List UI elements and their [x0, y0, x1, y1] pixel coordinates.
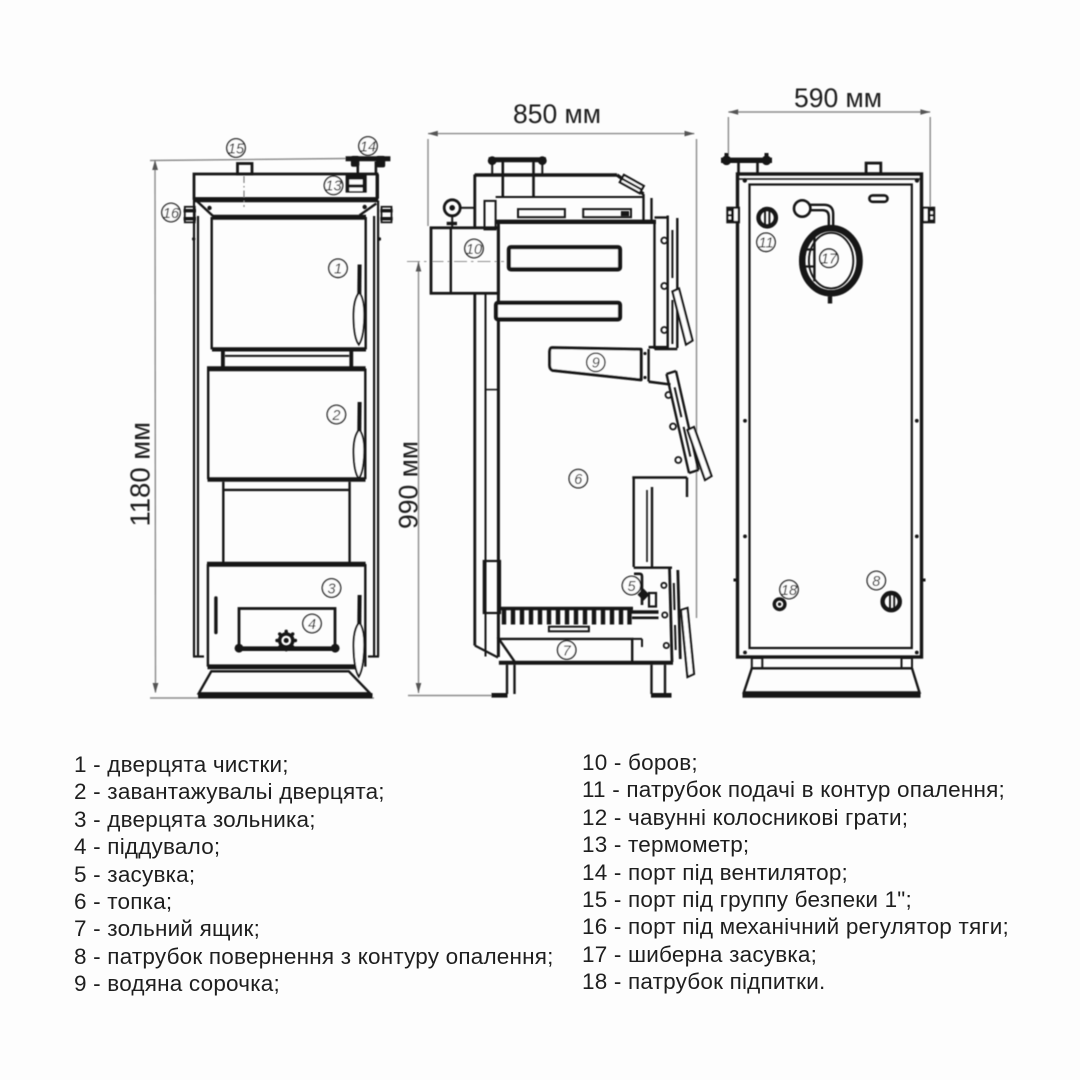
svg-text:6: 6 — [574, 472, 583, 488]
svg-text:3: 3 — [327, 581, 335, 597]
svg-text:1180 мм: 1180 мм — [125, 422, 156, 527]
svg-text:2: 2 — [331, 408, 340, 424]
svg-text:10: 10 — [466, 242, 482, 258]
svg-text:16: 16 — [163, 206, 180, 222]
svg-text:1: 1 — [334, 262, 342, 278]
svg-text:4: 4 — [308, 617, 316, 633]
svg-text:18: 18 — [781, 583, 797, 599]
svg-text:17: 17 — [821, 252, 838, 268]
svg-text:850 мм: 850 мм — [513, 99, 601, 129]
svg-text:8: 8 — [872, 574, 880, 590]
svg-text:7: 7 — [563, 643, 572, 659]
svg-text:590 мм: 590 мм — [794, 83, 882, 113]
svg-text:13: 13 — [325, 179, 341, 195]
svg-text:15: 15 — [228, 141, 245, 157]
svg-text:5: 5 — [627, 579, 636, 595]
svg-text:9: 9 — [592, 356, 600, 372]
svg-text:11: 11 — [758, 236, 773, 252]
svg-text:14: 14 — [360, 139, 376, 155]
